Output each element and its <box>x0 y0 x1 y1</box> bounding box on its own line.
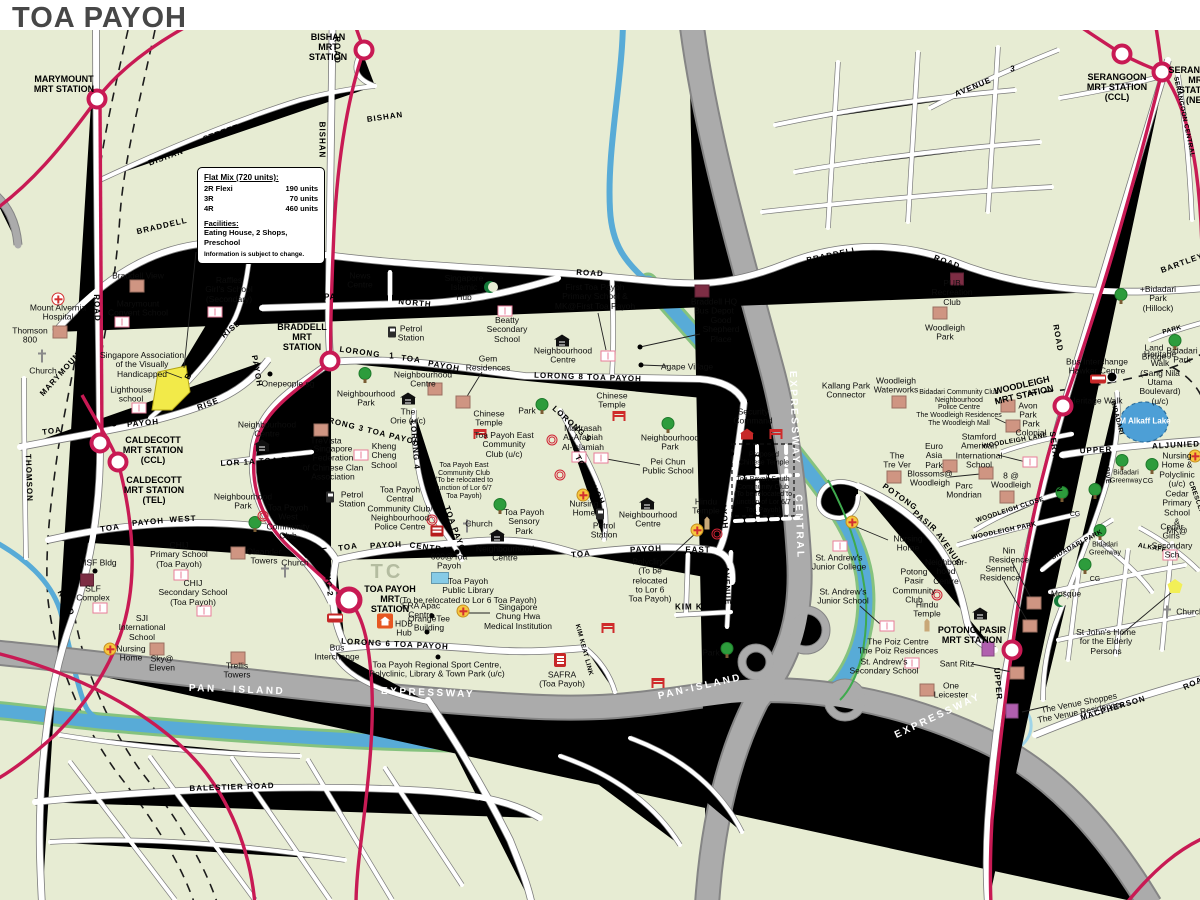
torii-icon <box>770 429 783 439</box>
book-icon <box>833 541 848 552</box>
toa-payoh-map: TOA PAYOH Flat Mix (720 units): 2R Flexi… <box>0 0 1200 900</box>
place-label-security-command: Security Command <box>733 408 772 427</box>
flat-mix-row: 4R460 units <box>204 204 318 214</box>
place-label-st-john-s-home-for-the-elderly-persons: St John's Home for the Elderly Persons <box>1076 628 1136 656</box>
info-note: Information is subject to change. <box>204 251 318 258</box>
place-label-raffles-girl-s-school-secondary: Raffles Girl's School (Secondary) <box>205 276 252 304</box>
flat-mix-info-box: Flat Mix (720 units): 2R Flexi190 units3… <box>197 167 325 264</box>
place-label-toa-payoh-central-community-club-neighbo: Toa Payoh Central Community Club/ Neighb… <box>367 486 432 533</box>
place-label-kallang-park-connector: Kallang Park Connector <box>822 382 870 401</box>
redhouse-icon <box>740 429 754 440</box>
flat-count: 190 units <box>285 184 318 194</box>
book-icon <box>594 453 609 464</box>
tree-icon <box>1089 483 1102 499</box>
dot-icon <box>639 363 644 368</box>
dot-icon <box>93 569 98 574</box>
road-label-1: 1 <box>389 352 394 361</box>
place-label-bidadari-park-hillock: +Bidadari Park (Hillock) <box>1137 285 1179 313</box>
house-icon <box>254 440 270 453</box>
place-label-petrol-station: Petrol Station <box>339 491 365 510</box>
bus-icon <box>327 614 343 623</box>
hdb-icon <box>377 614 393 629</box>
tree-icon <box>1079 558 1092 574</box>
mrt-label-braddell-mrt-station: BRADDELL MRT STATION <box>277 322 327 352</box>
road-label-toa: TOA <box>287 291 307 300</box>
safra-icon <box>554 653 566 667</box>
building-salmon <box>1023 620 1038 633</box>
place-label-neighbourhood-centre: Neighbourhood Centre <box>534 347 592 366</box>
place-label-sennett-residence: Sennett Residence <box>980 565 1020 584</box>
flat-mix-rows: 2R Flexi190 units3R70 units4R460 units <box>204 184 318 214</box>
road-label-east: EAST <box>685 546 710 555</box>
tree-icon <box>1116 454 1129 470</box>
place-label-hdb-hub: HDB Hub <box>395 620 413 639</box>
flat-type: 3R <box>204 194 214 204</box>
place-label-orangetee-building: OrangeTee Building <box>408 615 450 634</box>
building-salmon <box>887 471 902 484</box>
place-label-petrol-station: Petrol Station <box>591 522 617 541</box>
place-label-euro-asia-park: Euro Asia Park <box>925 442 943 470</box>
place-label-kheng-cheng-school: Kheng Cheng School <box>371 442 397 470</box>
place-label-cg: CG <box>1143 478 1154 486</box>
place-label-toa-payoh-south-community-club-to-be-rel: Toa Payoh South Community Club (To be re… <box>734 476 792 514</box>
place-label-toa-payoh-east-community-club-u-c: Toa Payoh East Community Club (u/c) <box>474 431 534 459</box>
book-icon <box>197 606 212 617</box>
place-label-toa-payoh-east-community-club-to-be-relo: Toa Payoh East Community Club (To be rel… <box>435 462 493 500</box>
place-label-braddell-view: Braddell View <box>112 271 164 280</box>
place-label-petrol-station: Petrol Station <box>398 325 424 344</box>
place-label-sji-international-school: SJI International School <box>119 614 166 642</box>
road-label-payoh: PAYOH <box>370 540 403 551</box>
dot-icon <box>373 274 378 279</box>
wheel-icon <box>547 435 558 446</box>
road-label-3: 3 <box>1010 65 1015 74</box>
place-label-polyclinic-to-be-relocated-to-lor-6-toa-: Polyclinic (To be relocated to Lor 6 Toa… <box>629 558 672 605</box>
tree-icon <box>721 642 734 658</box>
place-label-gem-residences: Gem Residences <box>466 355 510 374</box>
road-label-payoh: PAYOH <box>630 544 663 555</box>
place-label-nin-residence: Nin Residence <box>989 547 1029 566</box>
mrt-label-marymount-mrt-station: MARYMOUNT MRT STATION <box>34 74 94 94</box>
mrt-station-caldecott-mrt-station-ccl <box>90 433 111 454</box>
place-label-proposed-chinese-temple: Proposed Chinese Temple <box>739 451 789 466</box>
place-label-braddell-hq-bus-depot: Braddell HQ Bus Depot <box>691 298 737 317</box>
place-label-safra-toa-payoh: SAFRA (Toa Payoh) <box>539 671 585 690</box>
place-label-news-centre: News Centre <box>347 272 373 291</box>
mrt-station-bishan-mrt-station <box>354 40 375 61</box>
place-label-oleander-towers: Oleander Towers <box>247 548 282 567</box>
place-label-pub-recreation-club: PUB Recreation Club <box>931 279 972 307</box>
road-label-upper: UPPER <box>1080 445 1113 456</box>
road-label-kim-keat: KIM KEAT <box>675 603 721 612</box>
place-label-toa-payoh-regional-sport-centre-polyclin: Toa Payoh Regional Sport Centre, Polycli… <box>369 661 504 680</box>
road-label-road: ROAD <box>92 294 102 322</box>
road-label-thomson: THOMSON <box>24 454 35 502</box>
house-icon <box>400 393 416 406</box>
road-label-payoh: PAYOH <box>324 293 356 302</box>
wheel-icon <box>555 470 566 481</box>
book-icon <box>208 307 223 318</box>
place-label-singapore-islamic-hub: Singapore Islamic Hub <box>445 274 484 302</box>
road-label-central: CENTRAL <box>792 494 805 560</box>
place-label-woodleigh-waterworks: Woodleigh Waterworks <box>874 377 919 396</box>
book-icon <box>601 351 616 362</box>
house-icon <box>489 530 505 543</box>
flat-type: 4R <box>204 204 214 214</box>
dot-icon <box>112 422 117 427</box>
flat-count: 460 units <box>285 204 318 214</box>
tree-icon <box>536 398 549 414</box>
place-label-mosque: Mosque <box>1051 589 1081 598</box>
place-label-church: Church <box>465 519 492 528</box>
place-label-park: Park <box>518 406 535 415</box>
house-icon <box>972 608 988 621</box>
place-label-hindu-temple: Hindu Temple <box>692 498 719 517</box>
dot-icon <box>1090 389 1095 394</box>
flat-mix-row: 2R Flexi190 units <box>204 184 318 194</box>
place-label-chij-primary-school-toa-payoh: CHIJ Primary School (Toa Payoh) <box>150 541 208 569</box>
place-label-bus-interchange-hawker-centre: Bus Interchange Hawker Centre <box>1066 358 1128 377</box>
place-label-the-poiz-centre-the-poiz-residences: The Poiz Centre The Poiz Residences <box>858 638 938 657</box>
torii-icon <box>613 411 626 421</box>
place-label-good-shepherd-place: Good Shepherd Place <box>703 316 740 344</box>
place-label-cedar-girls-secondary-sch: Cedar Girls' Secondary Sch <box>1152 522 1193 559</box>
place-label-onepeople-sg: Onepeople.sg <box>262 379 315 388</box>
road-label-road: ROAD <box>576 268 604 278</box>
book-icon <box>93 603 108 614</box>
place-label-marymount-convent-school: Marymount Convent School <box>108 300 168 319</box>
place-label-first-toa-payoh-primary-school-mk-first-: First Toa Payoh Primary School & MK@Firs… <box>555 283 635 311</box>
place-label-st-andrew-s-junior-college: St. Andrew's Junior College <box>812 554 866 573</box>
flat-mix-row: 3R70 units <box>204 194 318 204</box>
nurse-icon <box>104 643 117 656</box>
mrt-label-toa-payoh-mrt-station: TOA PAYOH MRT STATION <box>364 584 416 614</box>
tree-icon <box>1146 458 1159 474</box>
mrt-label-caldecott-mrt-station-ccl: CALDECOTT MRT STATION (CCL) <box>123 435 183 465</box>
place-label-lighthouse-school: Lighthouse school <box>110 386 152 405</box>
tree-icon <box>359 367 372 383</box>
building-salmon <box>53 326 68 339</box>
place-label-neighbourhood-centre: Neighbourhood Centre <box>394 371 452 390</box>
mrt-station-woodleigh-mrt-station <box>1053 396 1074 417</box>
page-title: TOA PAYOH <box>12 2 187 35</box>
place-label-neighbourhood-centre: Neighbourhood Centre <box>619 511 677 530</box>
place-label-sky-eleven: Sky@ Eleven <box>149 655 175 674</box>
place-label-bidadari-park: Bidadari Park <box>1166 347 1197 366</box>
place-label-bidadari-greenway: Bidadari Greenway <box>1110 469 1142 484</box>
building-salmon <box>456 396 471 409</box>
place-label-park: Park <box>702 648 719 657</box>
place-label-neighbourhood-centre: Neighbourhood Centre <box>476 545 534 564</box>
tree-icon <box>1115 288 1128 304</box>
place-label-land-bridge: Land Bridge <box>1142 344 1167 363</box>
petrol-icon <box>388 327 396 338</box>
place-label-8-woodleigh: 8 @ Woodleigh <box>991 472 1031 491</box>
building-purple <box>1006 704 1019 719</box>
facilities-title: Facilities: <box>204 219 318 228</box>
place-label-nursing-home: Nursing Home <box>569 500 598 519</box>
place-label-beatty-secondary-school: Beatty Secondary School <box>487 316 528 344</box>
place-label-m-alkaff-lake: M Alkaff Lake <box>1119 418 1170 427</box>
place-label-toa-payoh-west-community-club: Toa Payoh West Community Club <box>267 503 310 540</box>
road-label-toa: TOA <box>571 549 591 560</box>
place-label-the-tre-ver: The Tre Ver <box>883 452 911 471</box>
place-label-nursing-home: Nursing Home <box>893 535 922 554</box>
place-label-bidadari-community-club-neighbourhood-po: Bidadari Community Club Neighbourhood Po… <box>916 389 1001 427</box>
mrt-station-serangoon-mrt-station-ccl <box>1112 44 1133 65</box>
facilities-value: Eating House, 2 Shops, Preschool <box>204 228 318 247</box>
crescent-icon <box>484 281 496 293</box>
place-label-avon-park: Avon Park <box>1018 402 1037 421</box>
place-label-sant-ritz: Sant Ritz <box>940 659 975 668</box>
place-label-church: Church <box>281 558 308 567</box>
place-label-pei-chun-public-school: Pei Chun Public School <box>642 458 694 477</box>
nurse-icon <box>457 605 470 618</box>
place-label-toa-payoh-sensory-park: Toa Payoh Sensory Park <box>504 508 544 536</box>
place-label-agape-village: Agape Village <box>661 362 713 371</box>
place-label-neighbourhood-park: Neighbourhood Park <box>641 434 699 453</box>
mrt-label-caldecott-mrt-station-tel: CALDECOTT MRT STATION (TEL) <box>124 475 184 505</box>
flat-type: 2R Flexi <box>204 184 233 194</box>
cross-icon <box>1162 606 1172 619</box>
place-label-neighbourhood-centre: Neighbourhood Centre <box>238 421 296 440</box>
place-label-cg: CG <box>1070 511 1081 519</box>
place-label-bidadari-greenway: Bidadari Greenway <box>1089 541 1121 556</box>
wheel-icon <box>712 529 723 540</box>
building-salmon <box>933 307 948 320</box>
place-label-bus-interchange: Bus Interchange <box>315 644 360 663</box>
place-label-trellis-towers: Trellis Towers <box>224 662 251 681</box>
road-label-bishan: BISHAN <box>318 122 327 159</box>
dot-icon <box>268 372 273 377</box>
building-salmon <box>1027 597 1042 610</box>
place-label-neighbourhood-park: Neighbourhood Park <box>337 390 395 409</box>
building-salmon <box>1000 491 1015 504</box>
building-salmon <box>231 547 246 560</box>
nurse-icon <box>691 524 704 537</box>
place-label-neighbourhood-park: Neighbourhood Park <box>214 493 272 512</box>
mrt-label-bishan-mrt-station: BISHAN MRT STATION <box>309 32 347 62</box>
torii-icon <box>652 678 665 688</box>
place-label-woodleigh-park: Woodleigh Park <box>925 324 965 343</box>
place-label-mount-alvernia-hospital: Mount Alvernia Hospital <box>30 304 86 323</box>
tree-icon <box>662 417 675 433</box>
nurse-icon <box>846 516 859 529</box>
place-label-hindu-temple: Hindu Temple <box>913 601 940 620</box>
place-label-chinese-temple: Chinese Temple <box>596 392 627 411</box>
book-icon <box>880 621 895 632</box>
building-salmon <box>920 684 935 697</box>
place-label-singapore-association-of-the-visually-ha: Singapore Association of the Visually Ha… <box>100 351 184 379</box>
place-label-st-andrew-s-secondary-school: St. Andrew's Secondary School <box>850 658 919 677</box>
building-salmon <box>130 280 145 293</box>
torii-icon <box>602 623 615 633</box>
building-salmon <box>1010 667 1025 680</box>
book-icon <box>1023 457 1038 468</box>
place-label-nursing-home: Nursing Home <box>116 645 145 664</box>
place-label-chij-secondary-school-toa-payoh: CHIJ Secondary School (Toa Payoh) <box>159 579 228 607</box>
place-label-thomson-800: Thomson 800 <box>12 327 47 346</box>
mrt-station-braddell-mrt-station <box>320 351 341 372</box>
flat-count: 70 units <box>290 194 318 204</box>
place-label-stamford-american-international-school: Stamford American International School <box>956 432 1003 469</box>
building-maroon <box>695 285 710 298</box>
flat-mix-title: Flat Mix (720 units): <box>204 173 318 182</box>
place-label-slf-complex: SLF Complex <box>76 585 110 604</box>
dot-icon <box>638 345 643 350</box>
mrt-station-toa-payoh-mrt-station <box>336 587 363 614</box>
mrt-label-potong-pasir-mrt-station: POTONG PASIR MRT STATION <box>938 625 1006 645</box>
mrt-label-serangoon-mrt-station-ccl: SERANGOON MRT STATION (CCL) <box>1087 72 1147 102</box>
place-label-parc-mondrian: Parc Mondrian <box>946 482 981 501</box>
house-icon <box>639 498 655 511</box>
petrol-icon <box>326 492 334 503</box>
building-salmon <box>892 396 907 409</box>
place-label-st-andrew-s-junior-school: St. Andrew's Junior School <box>817 588 869 607</box>
cross-icon <box>37 350 47 363</box>
place-label-cg: CG <box>1090 576 1101 584</box>
place-label-church: Church <box>1176 607 1200 616</box>
place-label-chinese-temple: Chinese Temple <box>473 410 504 429</box>
mrt-label-serangoon-mrt-station-nel: SERANGOON MRT STATION (NEL) <box>1168 65 1200 105</box>
place-label-msf-bldg: MSF Bldg <box>79 558 116 567</box>
road-label-west: WEST <box>169 514 197 524</box>
place-label-tc: TC <box>371 561 404 583</box>
place-label-singapore-chung-hwa-medical-institution: Singapore Chung Hwa Medical Institution <box>484 603 552 631</box>
